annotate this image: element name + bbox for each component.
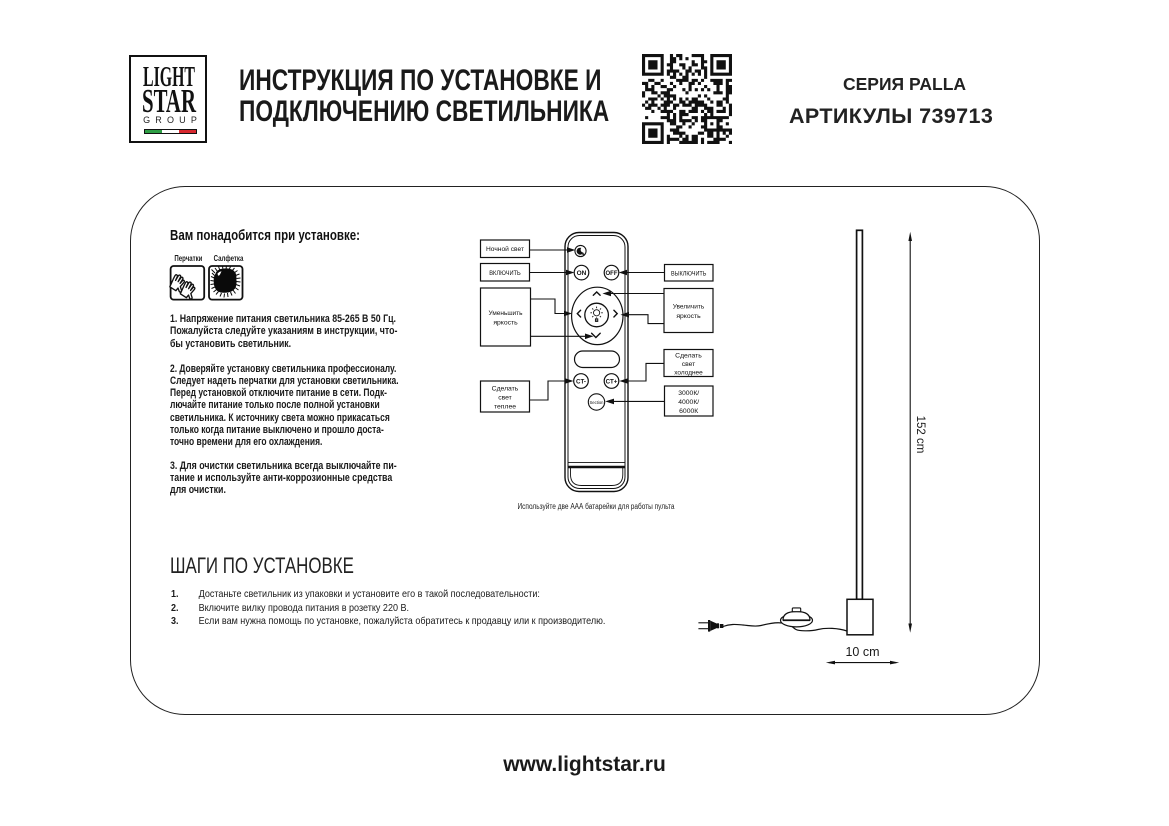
svg-text:теплее: теплее — [494, 404, 516, 411]
svg-text:Сделать: Сделать — [675, 353, 702, 360]
svg-text:152 cm: 152 cm — [914, 416, 926, 454]
svg-text:Уменьшить: Уменьшить — [489, 310, 523, 317]
svg-text:ВЫКЛЮЧИТЬ: ВЫКЛЮЧИТЬ — [671, 271, 707, 278]
svg-text:яркость: яркость — [493, 320, 518, 327]
svg-text:холоднее: холоднее — [674, 370, 703, 377]
svg-text:Section: Section — [590, 400, 605, 405]
svg-text:ON: ON — [577, 270, 587, 277]
svg-text:ВКЛЮЧИТЬ: ВКЛЮЧИТЬ — [489, 270, 521, 277]
svg-text:Увеличить: Увеличить — [673, 304, 705, 311]
svg-text:Сделать: Сделать — [492, 386, 519, 393]
svg-text:OFF: OFF — [606, 271, 618, 277]
svg-text:яркость: яркость — [676, 313, 701, 320]
svg-text:3000К/: 3000К/ — [678, 390, 699, 397]
svg-text:6000К: 6000К — [679, 408, 698, 415]
svg-text:4000К/: 4000К/ — [678, 399, 699, 406]
svg-text:CT-: CT- — [576, 379, 586, 386]
svg-text:10 cm: 10 cm — [845, 645, 879, 659]
svg-text:CT+: CT+ — [606, 379, 618, 386]
svg-text:свет: свет — [682, 361, 696, 368]
svg-text:Ночной свет: Ночной свет — [486, 245, 524, 253]
svg-text:свет: свет — [498, 395, 512, 402]
svg-text:Используйте две ААА батарейки: Используйте две ААА батарейки для работы… — [518, 502, 676, 511]
